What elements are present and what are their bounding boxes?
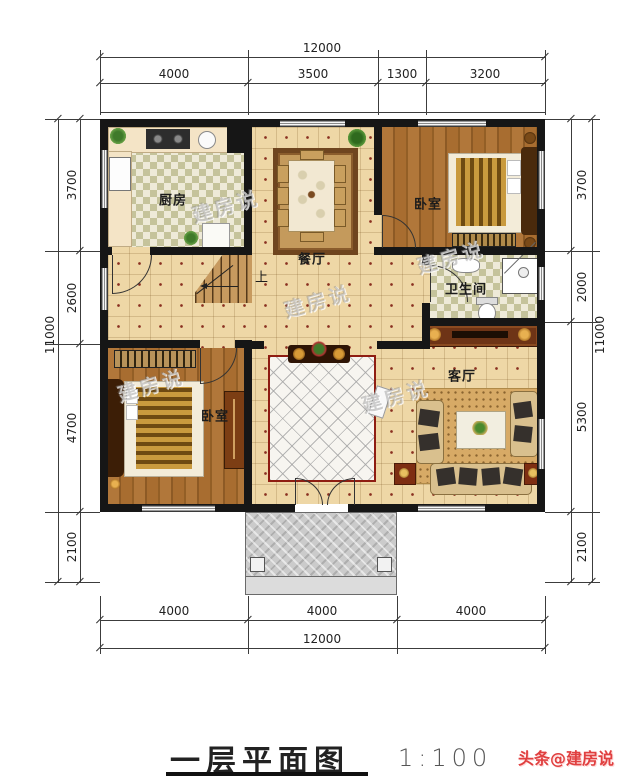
window (101, 150, 108, 208)
window (418, 120, 486, 127)
sofa-cushion (513, 401, 533, 419)
wall-bedroom-left-top (100, 340, 200, 348)
porch-column (250, 557, 265, 572)
wall-foyer-stub-right (377, 341, 430, 349)
sofa-cushion (436, 467, 456, 486)
floor-plan-page: 12000 4000 3500 1300 3200 11000 3700 260… (0, 0, 640, 780)
dim-ext (45, 119, 100, 120)
dim-right-seg-4: 2100 (576, 529, 588, 566)
dim-top-seg-4: 3200 (470, 68, 501, 80)
sofa-cushion (418, 433, 440, 451)
stairs-arrow (206, 286, 238, 287)
window (101, 268, 108, 310)
dim-ext (100, 596, 101, 654)
dim-ext (545, 596, 546, 654)
wall-bathroom-bottom (422, 318, 545, 326)
dim-left-seg-3: 4700 (66, 410, 78, 447)
chair (300, 150, 324, 160)
dim-line (100, 83, 545, 84)
dim-ext (545, 119, 600, 120)
nightstand-lamp-icon (524, 132, 536, 144)
dim-top-seg-2: 3500 (298, 68, 329, 80)
lamp-icon (110, 479, 120, 489)
wardrobe (224, 391, 246, 469)
wall-dining-bedroom (374, 127, 382, 215)
table-decor (472, 421, 488, 435)
pillow (126, 405, 138, 420)
dim-ext (100, 50, 101, 115)
chair (277, 187, 289, 205)
dim-bottom-seg-1: 4000 (159, 605, 190, 617)
dim-right-overall: 11000 (594, 313, 606, 357)
window (280, 120, 345, 127)
room-label-bathroom: 卫生间 (445, 279, 487, 298)
dim-ext (545, 582, 600, 583)
sofa-cushion (481, 467, 500, 486)
bowl-icon (333, 348, 345, 360)
dim-bottom-seg-2: 4000 (307, 605, 338, 617)
dining-table (288, 160, 335, 232)
chair (334, 165, 346, 183)
dim-left-overall: 11000 (44, 313, 56, 357)
plant-icon (184, 231, 198, 245)
dim-left-seg-2: 2600 (66, 280, 78, 317)
dim-ext (45, 512, 100, 513)
window (142, 505, 215, 512)
chair (334, 209, 346, 227)
porch-step (245, 576, 397, 595)
dim-ext (248, 596, 249, 654)
chair (277, 209, 289, 227)
dim-top-seg-1: 4000 (159, 68, 190, 80)
dim-ext (545, 512, 600, 513)
dim-ext (378, 50, 379, 115)
window (538, 267, 545, 300)
dim-line (100, 648, 545, 649)
wall-kitchen-bottom (100, 247, 112, 255)
room-label-bedroom-left: 卧室 (201, 406, 229, 425)
title-underline (166, 772, 368, 776)
dim-right-seg-1: 3700 (576, 167, 588, 204)
dim-ext (248, 50, 249, 115)
dim-line (100, 112, 545, 113)
lamp-icon (399, 468, 409, 478)
sink-icon (198, 131, 216, 149)
chair (277, 165, 289, 183)
dim-ext (426, 50, 427, 115)
dim-left-seg-4: 2100 (66, 529, 78, 566)
stairs-arrow-head (200, 283, 207, 289)
room-label-kitchen: 厨房 (159, 190, 187, 209)
stairs-up-label: 上 (255, 267, 269, 286)
dim-line (100, 57, 545, 58)
flower-icon (311, 341, 327, 357)
fridge-icon (109, 157, 131, 191)
lamp-icon (518, 328, 531, 341)
wall-flue-column (227, 127, 245, 153)
room-label-living: 客厅 (448, 366, 476, 385)
dim-ext (45, 251, 100, 252)
wall-foyer-stub-left (252, 341, 264, 349)
wall-kitchen-bottom (150, 247, 252, 255)
bed-headboard (521, 147, 537, 235)
bed-blanket (456, 158, 506, 226)
kitchen-table (202, 223, 230, 249)
tv-icon (452, 331, 508, 338)
room-label-bedroom-top: 卧室 (414, 194, 442, 213)
floor-plan: 厨房 餐厅 卧室 卫生间 卧室 客厅 上 建房说 建房说 建房说 建房说 建房说 (100, 119, 545, 512)
dim-bottom-overall: 12000 (303, 633, 341, 645)
sofa-cushion (513, 425, 533, 443)
window (538, 419, 545, 469)
credit-badge: 头条@建房说 (518, 745, 614, 769)
window (538, 151, 545, 209)
foyer-rug (268, 355, 376, 482)
dresser (114, 350, 196, 368)
dim-ext (545, 50, 546, 115)
sofa-cushion (503, 467, 523, 487)
scale-label: 1:100 (398, 744, 492, 772)
wall-bedroom-foyer (244, 340, 252, 504)
dim-right-seg-3: 5300 (576, 399, 588, 436)
stove-icon (146, 129, 190, 149)
dim-ext (45, 344, 100, 345)
porch-column (377, 557, 392, 572)
chair (334, 187, 346, 205)
sofa-cushion (418, 409, 440, 428)
dim-ext (545, 251, 600, 252)
window (418, 505, 485, 512)
dim-left-seg-1: 3700 (66, 167, 78, 204)
dim-bottom-seg-3: 4000 (456, 605, 487, 617)
pillow (507, 178, 521, 194)
pillow (507, 160, 521, 176)
dim-top-seg-3: 1300 (387, 68, 418, 80)
bowl-icon (293, 348, 305, 360)
room-label-dining: 餐厅 (298, 249, 326, 268)
dim-ext (397, 596, 398, 654)
wardrobe-handle (233, 399, 235, 459)
dim-right-seg-2: 2000 (576, 269, 588, 306)
dim-line (100, 620, 545, 621)
chair (300, 232, 324, 242)
dim-ext (545, 322, 600, 323)
plant-icon (348, 129, 366, 147)
plant-icon (110, 128, 126, 144)
dim-ext (45, 582, 100, 583)
dim-top-overall: 12000 (303, 42, 341, 54)
sofa-cushion (458, 467, 477, 486)
shower-drain-icon (518, 267, 529, 278)
